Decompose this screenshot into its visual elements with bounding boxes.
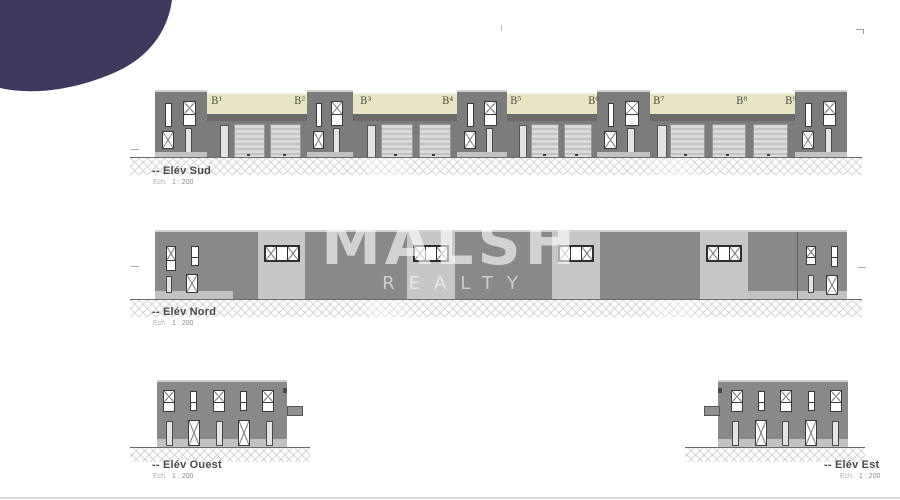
scale-value: 1 : 200 (859, 473, 880, 480)
page-bottom-line (0, 497, 900, 499)
entry-door (732, 421, 739, 446)
elevation-est-drawing: -- Elév Est Ech.1 : 200 (0, 0, 900, 500)
window (780, 390, 792, 412)
window (808, 391, 815, 411)
window (758, 391, 765, 411)
canopy-stub (704, 406, 720, 416)
wall-mark-icon (718, 388, 722, 393)
scale-prefix: Ech. (840, 473, 854, 480)
elevation-scale: Ech.1 : 200 (840, 473, 880, 480)
window (731, 390, 743, 412)
glazed-door (755, 420, 767, 446)
elevation-title: -- Elév Est (824, 459, 879, 471)
entry-door (782, 421, 789, 446)
entry-door (832, 421, 839, 446)
drawing-page: B¹ B² B³ B⁴ B⁵ B⁶ B⁷ B⁸ B⁹ -- Elév Sud E… (0, 0, 900, 500)
glazed-door (805, 420, 817, 446)
window (830, 390, 842, 412)
